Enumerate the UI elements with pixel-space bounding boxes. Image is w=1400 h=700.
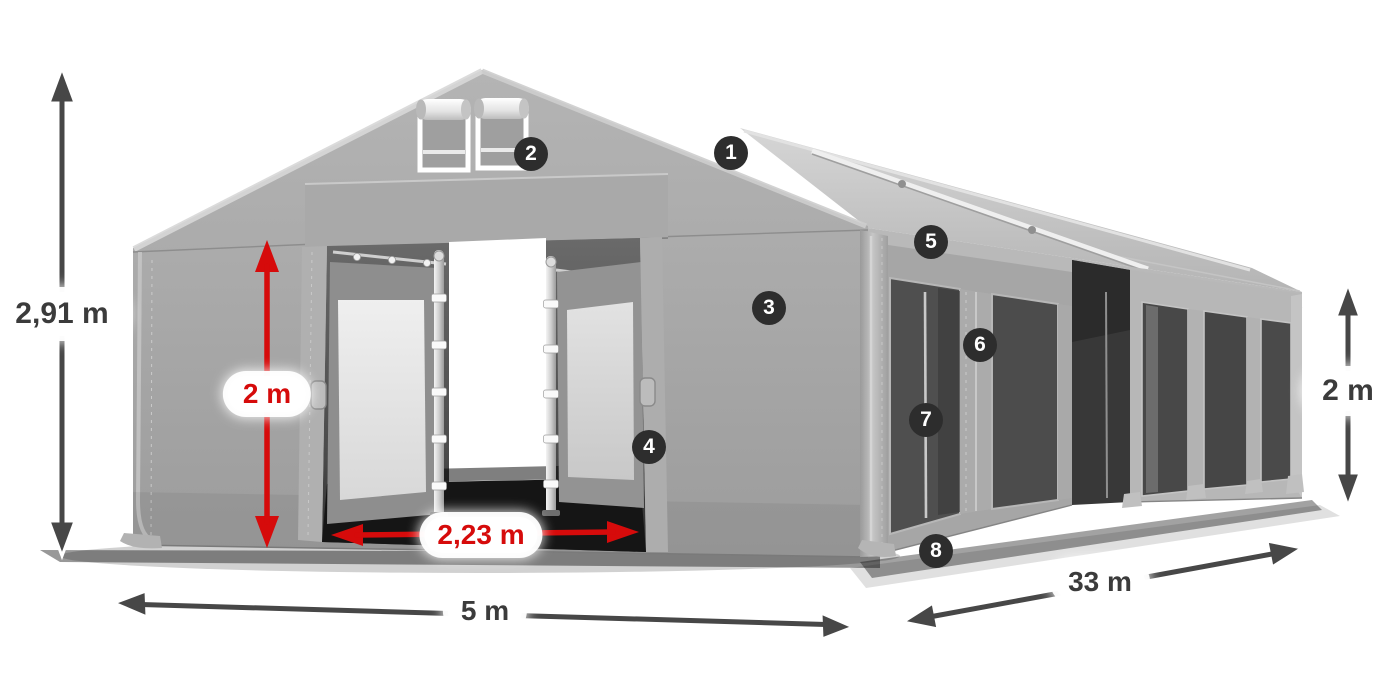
- side-wall-rear-module: [1122, 270, 1304, 508]
- entrance-lintel: [305, 174, 668, 248]
- hotspot-2-gable-vents[interactable]: 2: [514, 137, 548, 171]
- door-strap-right: [640, 378, 655, 406]
- dimension-label-entrance-height: 2 m: [228, 376, 306, 412]
- entrance-left-door: [327, 250, 448, 524]
- hotspot-3-front-wall[interactable]: 3: [752, 291, 786, 325]
- vent-window-left: [416, 99, 471, 170]
- side-window-5: [1261, 319, 1291, 482]
- dimension-label-total-height: 2,91 m: [0, 292, 125, 336]
- hotspot-6-side-strip[interactable]: 6: [963, 328, 997, 362]
- module-gap: [1072, 260, 1130, 505]
- tent-dimension-diagram: 2,91 m 2 m 2,23 m 5 m 33 m 2 m 1 2 3 4 5…: [0, 0, 1400, 700]
- right-door-window: [567, 302, 634, 480]
- dimension-label-side-length: 33 m: [1055, 564, 1145, 600]
- hotspot-1-roof[interactable]: 1: [714, 136, 748, 170]
- hotspot-7-interior-pole[interactable]: 7: [909, 403, 943, 437]
- side-wall-front-module: [868, 242, 1072, 557]
- side-window-4: [1204, 311, 1247, 489]
- entrance: [298, 237, 668, 552]
- hotspot-5-side-valance[interactable]: 5: [914, 225, 948, 259]
- hotspot-8-base-skirt[interactable]: 8: [919, 534, 953, 568]
- dimension-label-front-width: 5 m: [448, 592, 522, 630]
- door-strap-left: [311, 381, 326, 409]
- side-window-2: [992, 294, 1058, 509]
- hotspot-4-door-edge[interactable]: 4: [632, 430, 666, 464]
- dimension-label-entrance-width: 2,23 m: [424, 517, 537, 553]
- tent-illustration: [0, 0, 1400, 700]
- left-door-window: [338, 300, 426, 500]
- dimension-label-side-height: 2 m: [1307, 371, 1389, 411]
- entrance-see-through: [449, 238, 546, 506]
